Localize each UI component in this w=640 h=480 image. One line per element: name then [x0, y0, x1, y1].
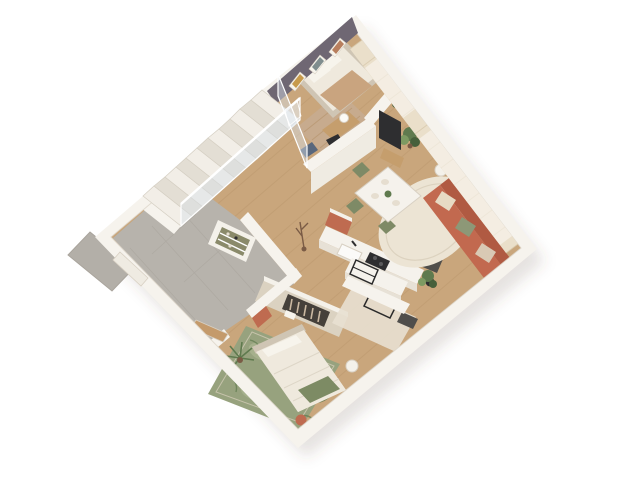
- plate: [392, 200, 400, 206]
- shelf-item: [226, 232, 229, 235]
- plate: [371, 193, 379, 199]
- shelf-item: [234, 236, 237, 239]
- shelf-item: [228, 244, 231, 247]
- cooktop-burner: [379, 262, 383, 266]
- palm-pot: [237, 357, 243, 363]
- side-table-lower: [346, 360, 358, 372]
- plant-foliage: [418, 278, 426, 286]
- plant-pot: [408, 144, 413, 149]
- floor-plan-canvas: [0, 0, 640, 480]
- table-centerpiece-plant: [385, 191, 392, 198]
- cooktop-burner: [373, 256, 377, 260]
- floor-plan-render: [0, 0, 640, 480]
- table-lamp: [340, 114, 349, 123]
- plate: [381, 179, 389, 185]
- plant-foliage: [429, 280, 437, 288]
- branch-vase: [302, 247, 307, 252]
